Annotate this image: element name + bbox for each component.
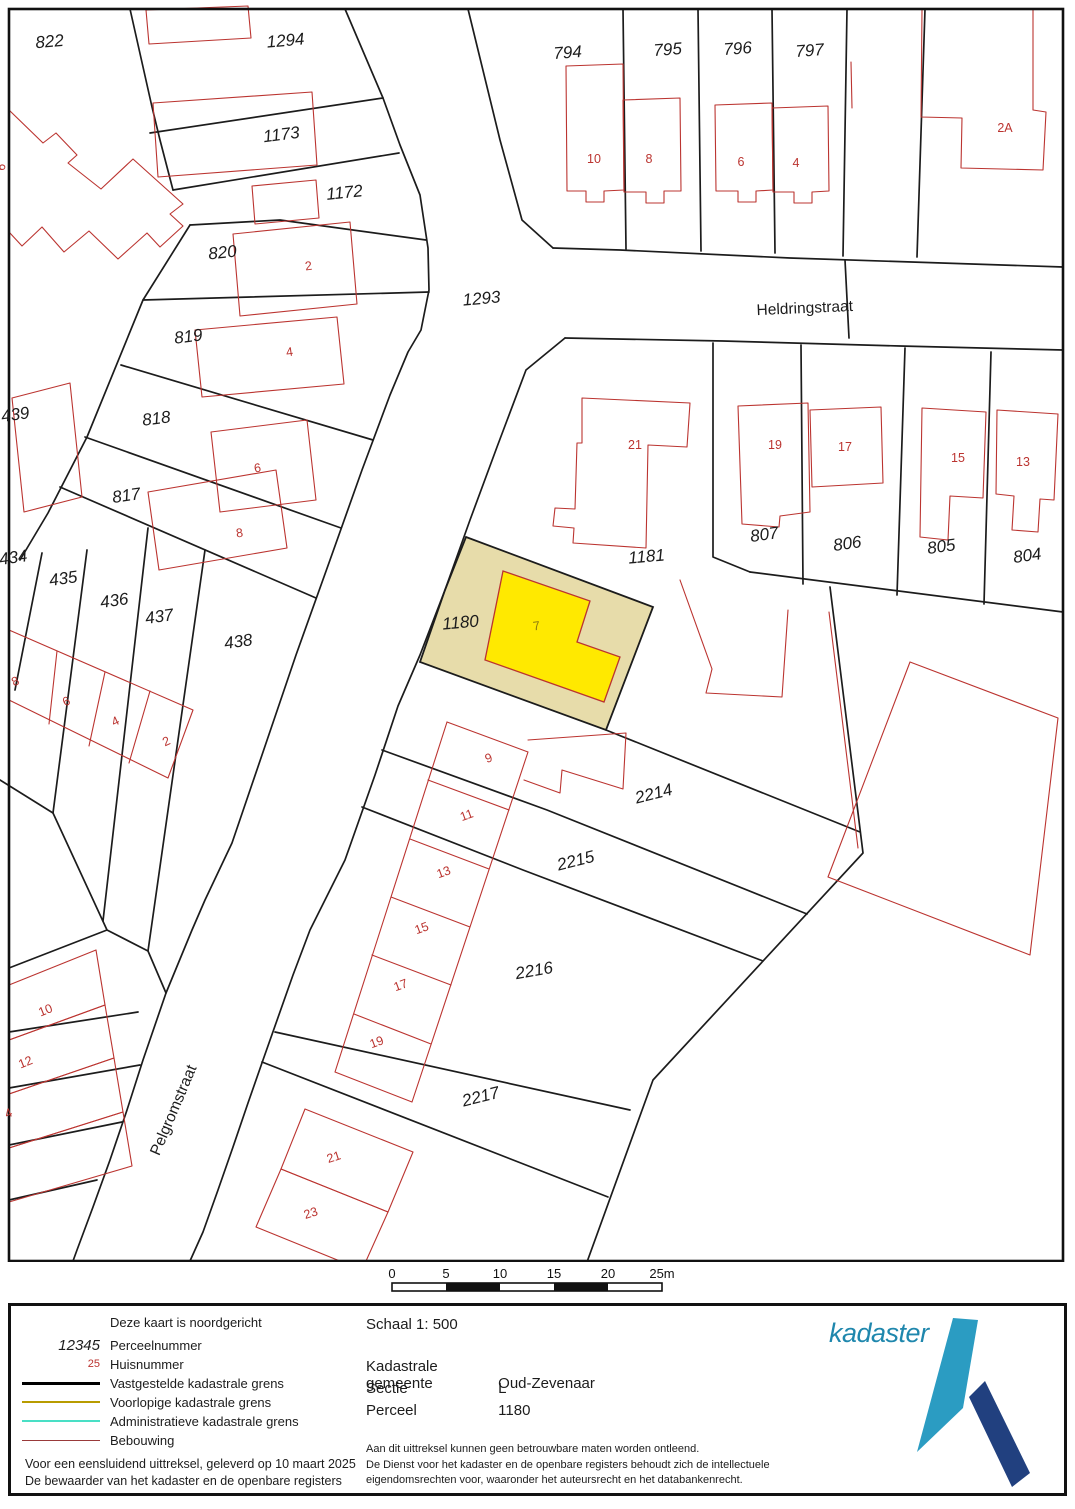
- house-number-6: 6: [60, 694, 72, 710]
- voorlopige-grens-line: [22, 1401, 100, 1403]
- parcel-label-806: 806: [832, 532, 863, 555]
- house-number-2: 2: [160, 734, 172, 750]
- house-number-6: 6: [0, 162, 9, 172]
- house-number-11: 11: [458, 806, 475, 824]
- parcel-label-1181: 1181: [627, 545, 665, 567]
- house-number-12: 12: [16, 1053, 34, 1071]
- parcel-label-818: 818: [141, 407, 172, 429]
- street-name-Pelgromstraat: Pelgromstraat: [147, 1062, 201, 1158]
- cadastral-map: 8221294117311728208198188174394344354364…: [0, 0, 1075, 1262]
- house-number-17: 17: [392, 976, 410, 994]
- legend-row-administratieve-grens: Administratieve kadastrale grens: [22, 1412, 299, 1430]
- house-number-4: 4: [793, 156, 800, 170]
- disclaimer-line-3: eigendomsrechten voor, waaronder het aut…: [366, 1473, 770, 1489]
- disclaimer-line-1: Aan dit uittreksel kunnen geen betrouwba…: [366, 1442, 770, 1458]
- parcel-label-797: 797: [795, 40, 825, 61]
- house-number-8: 8: [9, 674, 21, 690]
- legend-vastgestelde-label: Vastgestelde kadastrale grens: [110, 1376, 284, 1391]
- house-number-10: 10: [36, 1001, 54, 1019]
- scale-bar: 0510152025m: [0, 1262, 1075, 1303]
- house-number-13: 13: [1016, 455, 1030, 469]
- administratieve-grens-line: [22, 1420, 100, 1422]
- scale-tick-0: 0: [388, 1266, 395, 1281]
- house-number-2: 2: [304, 259, 313, 274]
- house-number-15: 15: [951, 451, 965, 465]
- legend-huis-label: Huisnummer: [110, 1357, 184, 1372]
- legend-row-huisnummer: 25 Huisnummer: [22, 1355, 184, 1373]
- parcel-label-2215: 2215: [554, 847, 597, 875]
- house-number-2A: 2A: [997, 121, 1013, 135]
- bebouwing-line: [22, 1440, 100, 1441]
- house-number-6: 6: [253, 461, 262, 476]
- parcel-label-1293: 1293: [462, 287, 502, 309]
- kadaster-logo: kadaster: [827, 1306, 1064, 1493]
- sectie-value: L: [498, 1380, 506, 1397]
- parcel-label-1173: 1173: [262, 123, 301, 146]
- road-east-edge-upper: [468, 9, 553, 248]
- parcel-label-805: 805: [926, 535, 957, 558]
- house-number-9: 9: [483, 750, 494, 766]
- sectie-label: Sectie: [366, 1380, 494, 1397]
- heldringstraat-south-edge: [565, 338, 1063, 350]
- parcel-label-436: 436: [99, 589, 130, 612]
- house-number-4: 4: [285, 345, 294, 360]
- parcel-label-819: 819: [173, 325, 204, 347]
- scale-bar-ticks: 0510152025m: [388, 1266, 674, 1281]
- kadaster-logo-text: kadaster: [829, 1318, 930, 1348]
- parcel-label-796: 796: [723, 38, 753, 59]
- parcel-label-1180: 1180: [441, 611, 480, 633]
- house-number-8: 8: [646, 152, 653, 166]
- map-footer: Deze kaart is noordgericht 12345 Perceel…: [8, 1303, 1067, 1496]
- terraced-row-9-19: [335, 722, 528, 1102]
- legend-row-voorlopige-grens: Voorlopige kadastrale grens: [22, 1393, 271, 1411]
- parcel-label-804: 804: [1012, 544, 1043, 567]
- scale-bar-blocks: [392, 1283, 662, 1291]
- parcel-label-439: 439: [0, 403, 31, 426]
- house-number-4: 4: [109, 714, 121, 730]
- house-number-10: 10: [587, 152, 601, 166]
- parcel-label-1172: 1172: [325, 181, 364, 204]
- legend-bebouwing-label: Bebouwing: [110, 1433, 174, 1448]
- kadaster-logo-diagonal-shape: [969, 1381, 1030, 1487]
- parcel-label-2214: 2214: [632, 780, 674, 808]
- info-row-sectie: Sectie L: [366, 1380, 836, 1397]
- perceel-value: 1180: [498, 1402, 530, 1419]
- large-rotated-building: [828, 662, 1058, 955]
- house-number-21: 21: [628, 438, 642, 452]
- scale-bar-svg: 0510152025m: [0, 1262, 1075, 1303]
- legend-row-north: Deze kaart is noordgericht: [22, 1313, 262, 1331]
- disclaimer-text: Aan dit uittreksel kunnen geen betrouwba…: [366, 1442, 770, 1489]
- house-number-4: 4: [3, 1105, 15, 1121]
- legend-perceel-symbol: 12345: [22, 1337, 110, 1354]
- issued-line-2: De bewaarder van het kadaster en de open…: [25, 1473, 356, 1490]
- scale-text: Schaal 1: 500: [366, 1316, 458, 1333]
- info-row-perceel: Perceel 1180: [366, 1402, 836, 1419]
- house-number-6: 6: [738, 155, 745, 169]
- parcel-label-794: 794: [553, 42, 583, 63]
- street-name-Heldringstraat: Heldringstraat: [756, 298, 854, 319]
- parcel-label-1294: 1294: [266, 29, 305, 51]
- house-number-19: 19: [768, 438, 782, 452]
- cadastral-map-svg: 8221294117311728208198188174394344354364…: [0, 0, 1075, 1262]
- kadaster-extract-page: { "map": { "highlighted_parcel": {"parce…: [0, 0, 1075, 1509]
- house-number-13: 13: [435, 863, 453, 881]
- parcel-label-2216: 2216: [513, 958, 555, 984]
- house-number-19: 19: [368, 1033, 386, 1051]
- scale-tick-15: 15: [547, 1266, 561, 1281]
- issued-line-1: Voor een eensluidend uittreksel, gelever…: [25, 1456, 356, 1473]
- parcel-label-807: 807: [749, 523, 780, 546]
- vastgestelde-grens-line: [22, 1382, 100, 1385]
- legend-row-vastgestelde-grens: Vastgestelde kadastrale grens: [22, 1374, 284, 1392]
- parcel-label-817: 817: [111, 484, 142, 507]
- legend-administratieve-label: Administratieve kadastrale grens: [110, 1414, 299, 1429]
- parcel-label-795: 795: [653, 39, 683, 60]
- house-number-21: 21: [325, 1148, 343, 1166]
- legend-row-perceelnummer: 12345 Perceelnummer: [22, 1336, 202, 1354]
- legend-huis-symbol: 25: [22, 1358, 110, 1370]
- legend-north-note: Deze kaart is noordgericht: [110, 1315, 262, 1330]
- scale-tick-10: 10: [493, 1266, 507, 1281]
- disclaimer-line-2: De Dienst voor het kadaster en de openba…: [366, 1458, 770, 1474]
- house-number-23: 23: [302, 1204, 320, 1222]
- perceel-label: Perceel: [366, 1402, 494, 1419]
- parcel-label-437: 437: [144, 605, 175, 628]
- legend-row-bebouwing: Bebouwing: [22, 1431, 174, 1449]
- parcel-label-820: 820: [207, 242, 238, 264]
- house-number-8: 8: [235, 526, 244, 541]
- parcel-label-822: 822: [35, 31, 65, 52]
- parcel-label-438: 438: [223, 630, 254, 653]
- house-number-15: 15: [413, 919, 431, 937]
- parcel-label-2217: 2217: [459, 1083, 502, 1111]
- heldringstraat-north-edge: [553, 248, 1063, 267]
- scale-tick-25m: 25m: [649, 1266, 674, 1281]
- legend-perceel-label: Perceelnummer: [110, 1338, 202, 1353]
- parcel-label-434: 434: [0, 546, 29, 569]
- issued-statement: Voor een eensluidend uittreksel, gelever…: [25, 1456, 356, 1490]
- scale-tick-5: 5: [442, 1266, 449, 1281]
- parcel-label-435: 435: [48, 567, 79, 590]
- legend-voorlopige-label: Voorlopige kadastrale grens: [110, 1395, 271, 1410]
- scale-tick-20: 20: [601, 1266, 615, 1281]
- house-number-17: 17: [838, 440, 852, 454]
